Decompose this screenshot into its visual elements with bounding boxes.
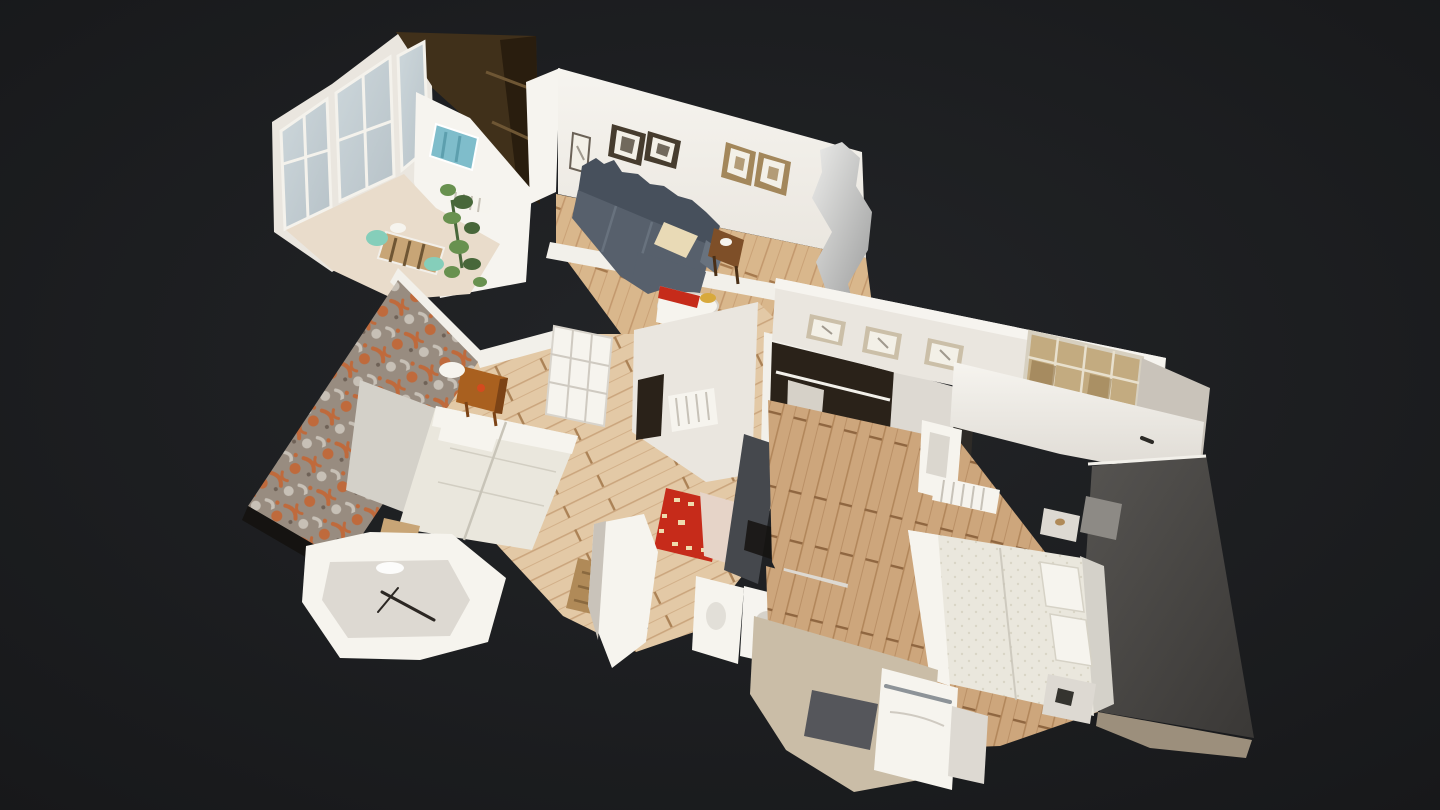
drawer-knob (477, 384, 485, 392)
cloth-on-floor (439, 362, 465, 378)
door-fragment-2 (692, 576, 744, 664)
door-opening (636, 374, 664, 440)
bath-panel (948, 706, 988, 784)
tub-highlight (376, 562, 404, 574)
teal-chair (366, 230, 388, 246)
pillow-right-1 (1040, 562, 1084, 612)
yellow-toy (700, 293, 716, 303)
dollhouse-3d-view[interactable] (0, 0, 1440, 810)
viewer-canvas[interactable] (0, 0, 1440, 810)
shower-unit (874, 668, 958, 790)
living-left-wall (526, 68, 560, 204)
glass-cabinet (546, 326, 612, 426)
pillow-right-2 (1050, 614, 1092, 666)
teal-chair-2 (424, 257, 444, 271)
